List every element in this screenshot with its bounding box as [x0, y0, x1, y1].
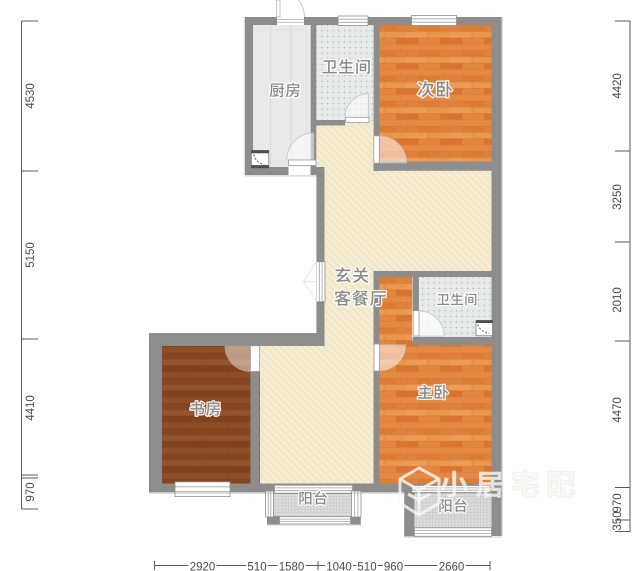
svg-text:3250: 3250: [612, 184, 624, 210]
svg-text:2660: 2660: [439, 562, 465, 571]
svg-text:970: 970: [612, 493, 624, 512]
svg-text:5150: 5150: [25, 242, 37, 268]
svg-text:4420: 4420: [612, 73, 624, 99]
svg-text:4410: 4410: [25, 395, 37, 421]
svg-text:970: 970: [25, 482, 37, 501]
svg-text:510: 510: [357, 562, 376, 571]
svg-text:510: 510: [247, 562, 266, 571]
svg-text:960: 960: [384, 562, 403, 571]
svg-text:4530: 4530: [25, 83, 37, 109]
svg-text:4470: 4470: [612, 397, 624, 423]
svg-text:350: 350: [612, 511, 624, 530]
svg-text:1040: 1040: [326, 562, 352, 571]
svg-text:2920: 2920: [190, 562, 216, 571]
svg-text:2010: 2010: [612, 287, 624, 313]
svg-text:1580: 1580: [279, 562, 305, 571]
